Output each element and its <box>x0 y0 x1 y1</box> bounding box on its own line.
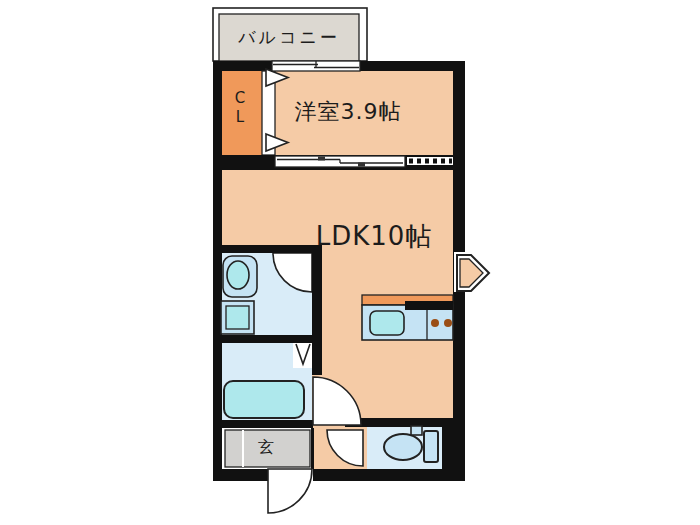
sliding-door <box>275 156 405 167</box>
toilet-cistern-button <box>411 426 422 435</box>
entrance-hall-divider <box>311 428 314 469</box>
entrance-step-divider <box>242 430 244 467</box>
washing-machine-drum <box>226 306 249 329</box>
balcony: バルコニー <box>213 8 367 61</box>
ldk-label: LDK10帖 <box>316 221 433 251</box>
stove-burner <box>431 319 439 327</box>
balcony-label: バルコニー <box>237 27 340 47</box>
closet-label-line1: C <box>235 89 245 107</box>
entrance-hall: 玄 <box>222 428 313 469</box>
vent-strip-bg <box>407 157 453 165</box>
toilet-side-wall <box>442 427 454 469</box>
toilet-room <box>367 426 442 469</box>
western-room-label: 洋室3.9帖 <box>295 99 402 124</box>
washroom-top-wall <box>222 245 322 253</box>
kitchen-sink <box>370 311 404 335</box>
vanity-basin <box>227 261 249 289</box>
sliding-door-handle <box>358 163 365 167</box>
kitchen-wall-bar <box>405 301 453 310</box>
washroom-side-wall <box>312 245 322 375</box>
sliding-door-handle <box>318 157 325 161</box>
bathtub <box>224 381 304 418</box>
entrance-label: 玄 <box>258 437 274 456</box>
direction-marker <box>454 252 489 292</box>
closet-label-line2: L <box>236 108 245 126</box>
kitchen <box>362 295 453 340</box>
floor-plan-page: バルコニー 玄 <box>0 0 700 525</box>
toilet-bowl <box>384 434 422 460</box>
bath-entrance-wall <box>222 420 313 428</box>
balcony-window <box>272 61 360 71</box>
toilet-tank <box>424 431 438 462</box>
front-door-arc <box>268 469 312 513</box>
stove-burner <box>444 319 452 327</box>
washroom-bath-wall <box>222 335 312 343</box>
floor-plan: バルコニー 玄 <box>0 0 700 525</box>
